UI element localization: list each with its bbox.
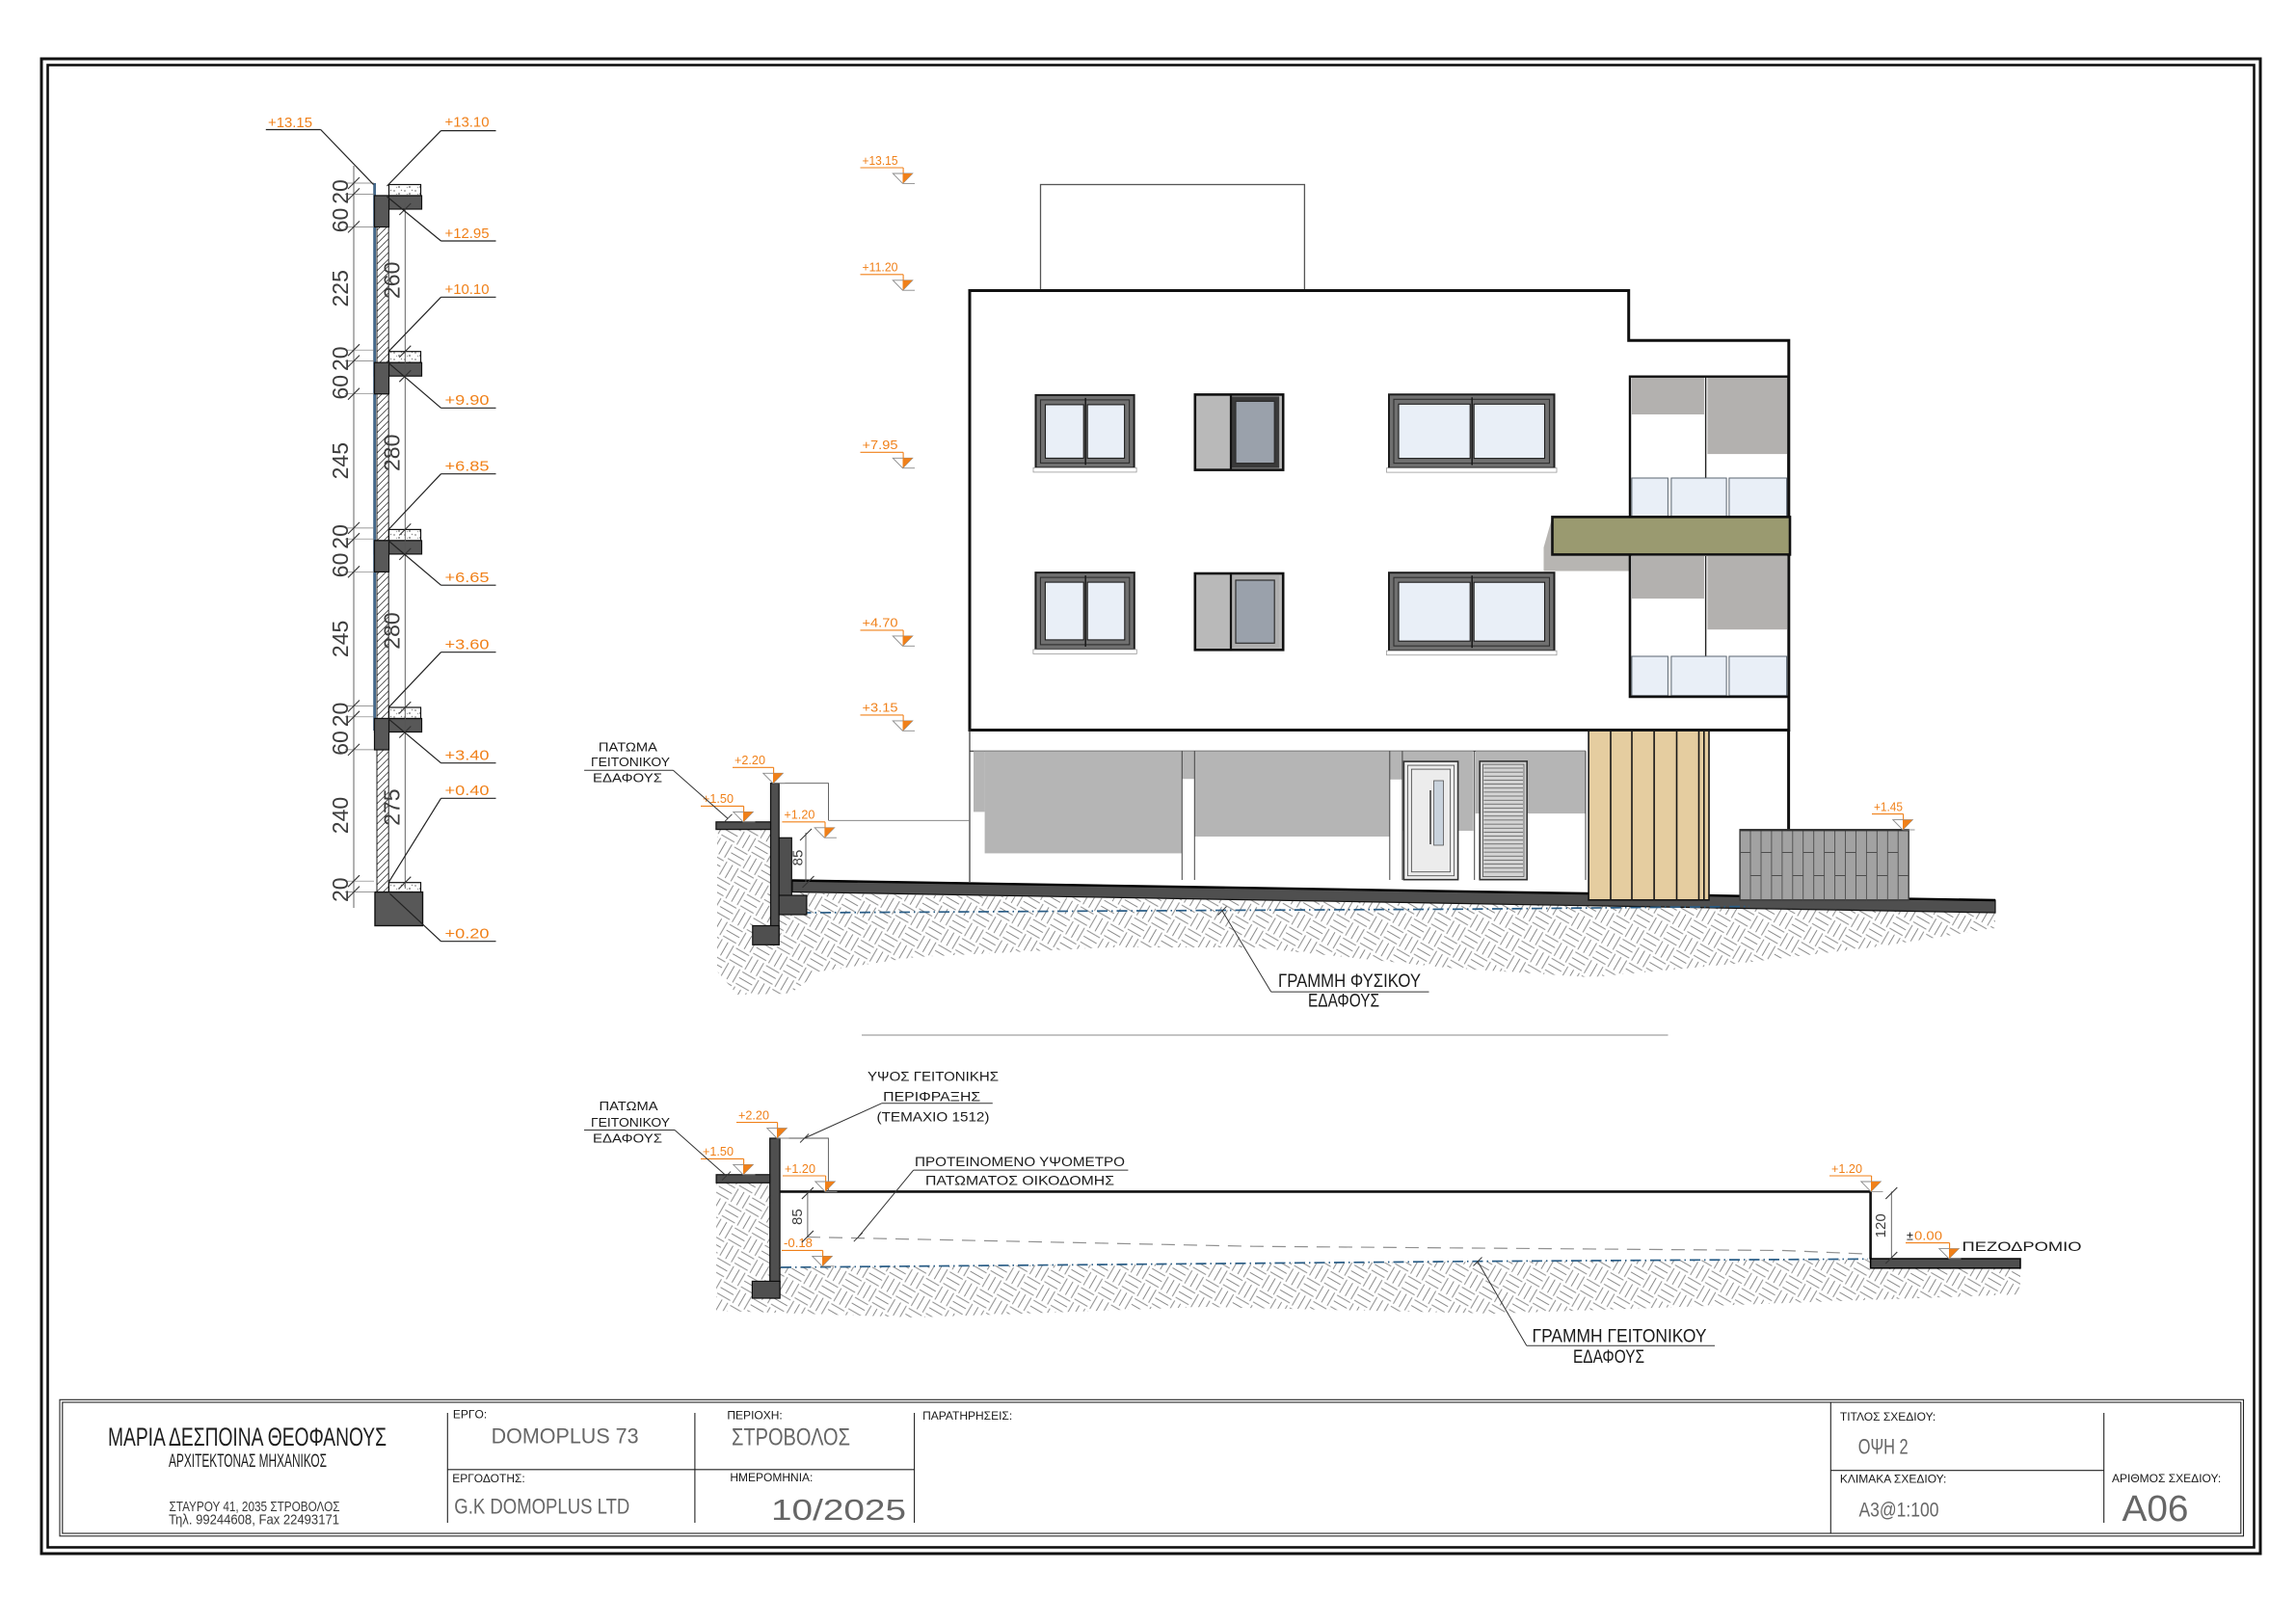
svg-text:ΤΙΤΛΟΣ ΣΧΕΔΙΟΥ:: ΤΙΤΛΟΣ ΣΧΕΔΙΟΥ: [1840,1410,1936,1423]
svg-text:±: ± [1907,1229,1913,1242]
svg-text:20: 20 [328,703,353,728]
svg-text:+2.20: +2.20 [738,1108,769,1122]
svg-text:ΠΕΖΟΔΡΟΜΙΟ: ΠΕΖΟΔΡΟΜΙΟ [1962,1238,2082,1254]
svg-text:ΣΤΡΟΒΟΛΟΣ: ΣΤΡΟΒΟΛΟΣ [732,1423,850,1450]
svg-text:+13.15: +13.15 [863,154,898,168]
svg-text:+6.65: +6.65 [445,570,490,586]
svg-text:+11.20: +11.20 [863,261,898,275]
svg-text:60: 60 [328,731,353,756]
svg-text:20: 20 [328,524,353,549]
svg-text:+1.50: +1.50 [703,1145,734,1158]
svg-text:+4.70: +4.70 [863,617,898,630]
svg-text:ΠΕΡΙΦΡΑΞΗΣ: ΠΕΡΙΦΡΑΞΗΣ [883,1089,980,1104]
svg-text:120: 120 [1873,1213,1889,1237]
svg-text:20: 20 [328,877,353,902]
svg-text:+1.20: +1.20 [1831,1162,1862,1176]
svg-text:+0.40: +0.40 [445,783,490,799]
svg-text:-0.18: -0.18 [784,1237,813,1250]
svg-text:85: 85 [790,850,807,866]
svg-text:ΠΕΡΙΟΧΗ:: ΠΕΡΙΟΧΗ: [727,1408,782,1422]
svg-text:ΕΔΑΦΟΥΣ: ΕΔΑΦΟΥΣ [593,1131,662,1146]
svg-text:0.00: 0.00 [1914,1229,1942,1242]
svg-text:20: 20 [328,179,353,204]
svg-text:+1.45: +1.45 [1874,800,1903,813]
svg-text:ΟΨΗ 2: ΟΨΗ 2 [1858,1435,1909,1459]
svg-text:+1.20: +1.20 [784,809,814,822]
svg-text:ΚΛΙΜΑΚΑ ΣΧΕΔΙΟΥ:: ΚΛΙΜΑΚΑ ΣΧΕΔΙΟΥ: [1840,1473,1946,1486]
svg-text:ΗΜΕΡΟΜΗΝΙΑ:: ΗΜΕΡΟΜΗΝΙΑ: [730,1471,813,1484]
svg-text:245: 245 [328,442,353,479]
svg-text:ΑΡΙΘΜΟΣ ΣΧΕΔΙΟΥ:: ΑΡΙΘΜΟΣ ΣΧΕΔΙΟΥ: [2112,1472,2221,1485]
svg-text:60: 60 [328,553,353,578]
svg-text:+1.50: +1.50 [703,792,734,806]
svg-text:ΕΡΓΟ:: ΕΡΓΟ: [453,1408,487,1422]
svg-text:DOMOPLUS 73: DOMOPLUS 73 [492,1424,639,1449]
svg-text:ΥΨΟΣ ΓΕΙΤΟΝΙΚΗΣ: ΥΨΟΣ ΓΕΙΤΟΝΙΚΗΣ [868,1069,999,1084]
svg-text:ΠΑΡΑΤΗΡΗΣΕΙΣ:: ΠΑΡΑΤΗΡΗΣΕΙΣ: [922,1409,1012,1423]
svg-text:ΓΕΙΤΟΝΙΚΟΥ: ΓΕΙΤΟΝΙΚΟΥ [591,755,670,769]
svg-text:+12.95: +12.95 [445,226,490,242]
svg-text:245: 245 [328,621,353,657]
svg-text:(ΤΕΜΑΧΙΟ 1512): (ΤΕΜΑΧΙΟ 1512) [877,1109,990,1125]
svg-text:ΕΔΑΦΟΥΣ: ΕΔΑΦΟΥΣ [1573,1347,1644,1368]
svg-text:ΠΡΟΤΕΙΝΟΜΕΝΟ ΥΨΟΜΕΤΡΟ: ΠΡΟΤΕΙΝΟΜΕΝΟ ΥΨΟΜΕΤΡΟ [915,1154,1125,1169]
svg-text:275: 275 [380,788,405,825]
svg-text:+0.20: +0.20 [445,926,490,943]
svg-text:60: 60 [328,375,353,400]
svg-text:10/2025: 10/2025 [771,1493,906,1527]
svg-text:ΕΡΓΟΔΟΤΗΣ:: ΕΡΓΟΔΟΤΗΣ: [452,1472,525,1485]
svg-text:+6.85: +6.85 [445,459,490,475]
svg-text:20: 20 [328,346,353,371]
svg-text:+3.15: +3.15 [863,702,898,715]
svg-text:+3.40: +3.40 [445,748,490,764]
svg-text:+7.95: +7.95 [863,439,898,452]
svg-text:A3@1:100: A3@1:100 [1859,1500,1939,1522]
svg-text:ΠΑΤΩΜΑ: ΠΑΤΩΜΑ [600,1099,658,1113]
svg-text:85: 85 [789,1209,806,1225]
svg-text:+3.60: +3.60 [445,637,490,653]
svg-text:ΜΑΡΙΑ ΔΕΣΠΟΙΝΑ ΘΕΟΦΑΝΟΥΣ: ΜΑΡΙΑ ΔΕΣΠΟΙΝΑ ΘΕΟΦΑΝΟΥΣ [108,1423,387,1451]
svg-text:ΕΔΑΦΟΥΣ: ΕΔΑΦΟΥΣ [1308,992,1379,1012]
svg-text:ΓΕΙΤΟΝΙΚΟΥ: ΓΕΙΤΟΝΙΚΟΥ [591,1115,670,1130]
svg-text:+13.15: +13.15 [268,115,312,131]
svg-text:ΑΡΧΙΤΕΚΤΟΝΑΣ ΜΗΧΑΝΙΚΟΣ: ΑΡΧΙΤΕΚΤΟΝΑΣ ΜΗΧΑΝΙΚΟΣ [169,1451,327,1472]
svg-text:+2.20: +2.20 [734,754,765,767]
svg-text:ΕΔΑΦΟΥΣ: ΕΔΑΦΟΥΣ [593,771,662,785]
svg-text:240: 240 [328,797,353,834]
svg-text:G.K DOMOPLUS LTD: G.K DOMOPLUS LTD [454,1495,629,1519]
svg-text:ΓΡΑΜΜΗ ΓΕΙΤΟΝΙΚΟΥ: ΓΡΑΜΜΗ ΓΕΙΤΟΝΙΚΟΥ [1533,1327,1707,1347]
svg-text:280: 280 [380,435,405,471]
svg-text:225: 225 [328,270,353,306]
svg-text:+1.20: +1.20 [785,1162,815,1176]
svg-text:ΓΡΑΜΜΗ ΦΥΣΙΚΟΥ: ΓΡΑΜΜΗ ΦΥΣΙΚΟΥ [1278,971,1421,992]
svg-text:280: 280 [380,612,405,649]
svg-text:A06: A06 [2122,1489,2189,1530]
svg-text:Τηλ. 99244608, Fax 22493171: Τηλ. 99244608, Fax 22493171 [169,1512,339,1529]
svg-text:ΠΑΤΩΜΑΤΟΣ ΟΙΚΟΔΟΜΗΣ: ΠΑΤΩΜΑΤΟΣ ΟΙΚΟΔΟΜΗΣ [925,1173,1114,1188]
svg-text:+10.10: +10.10 [445,281,490,298]
svg-text:ΠΑΤΩΜΑ: ΠΑΤΩΜΑ [599,740,657,755]
svg-text:60: 60 [328,208,353,233]
svg-text:+9.90: +9.90 [445,392,490,409]
svg-text:260: 260 [380,262,405,299]
svg-text:+13.10: +13.10 [445,115,490,131]
